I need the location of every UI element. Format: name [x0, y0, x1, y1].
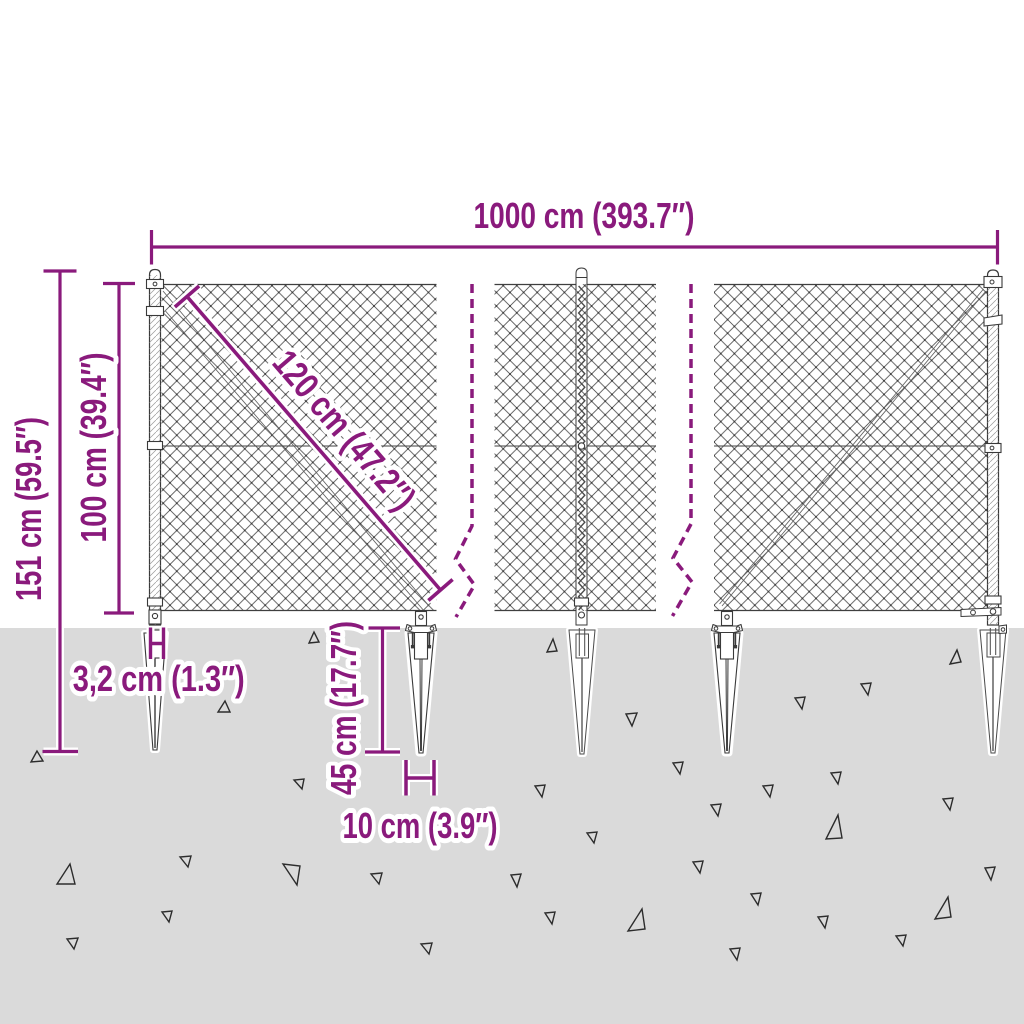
- svg-text:151 cm (59.5″): 151 cm (59.5″): [8, 417, 49, 601]
- svg-text:45 cm (17.7″): 45 cm (17.7″): [323, 621, 364, 795]
- svg-text:100 cm (39.4″): 100 cm (39.4″): [73, 353, 114, 543]
- svg-text:10 cm (3.9″): 10 cm (3.9″): [343, 805, 498, 846]
- svg-text:1000 cm (393.7″): 1000 cm (393.7″): [474, 195, 695, 236]
- svg-text:3,2 cm (1.3″): 3,2 cm (1.3″): [73, 658, 245, 699]
